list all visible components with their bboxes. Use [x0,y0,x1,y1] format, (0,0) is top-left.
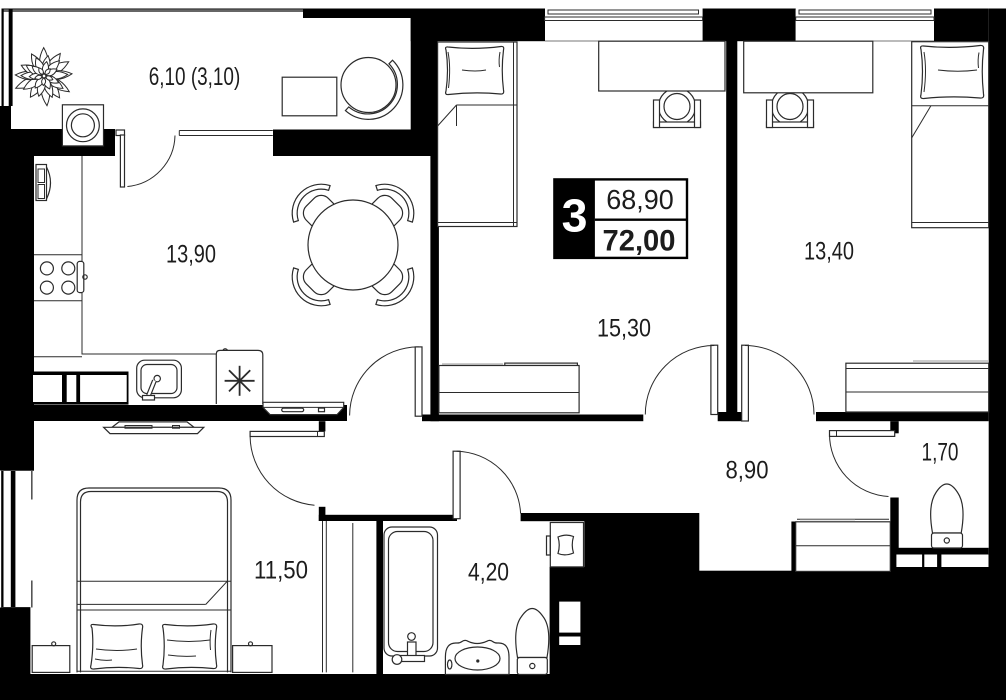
svg-text:13,90: 13,90 [166,241,216,269]
svg-text:3: 3 [562,190,588,242]
svg-text:68,90: 68,90 [606,184,674,215]
svg-text:6,10 (3,10): 6,10 (3,10) [149,63,241,91]
svg-text:13,40: 13,40 [804,238,854,266]
svg-text:11,50: 11,50 [254,557,308,585]
svg-text:72,00: 72,00 [603,225,676,258]
svg-text:4,20: 4,20 [468,559,509,587]
svg-text:8,90: 8,90 [726,457,769,485]
svg-text:1,70: 1,70 [922,439,959,467]
svg-text:15,30: 15,30 [597,315,651,343]
